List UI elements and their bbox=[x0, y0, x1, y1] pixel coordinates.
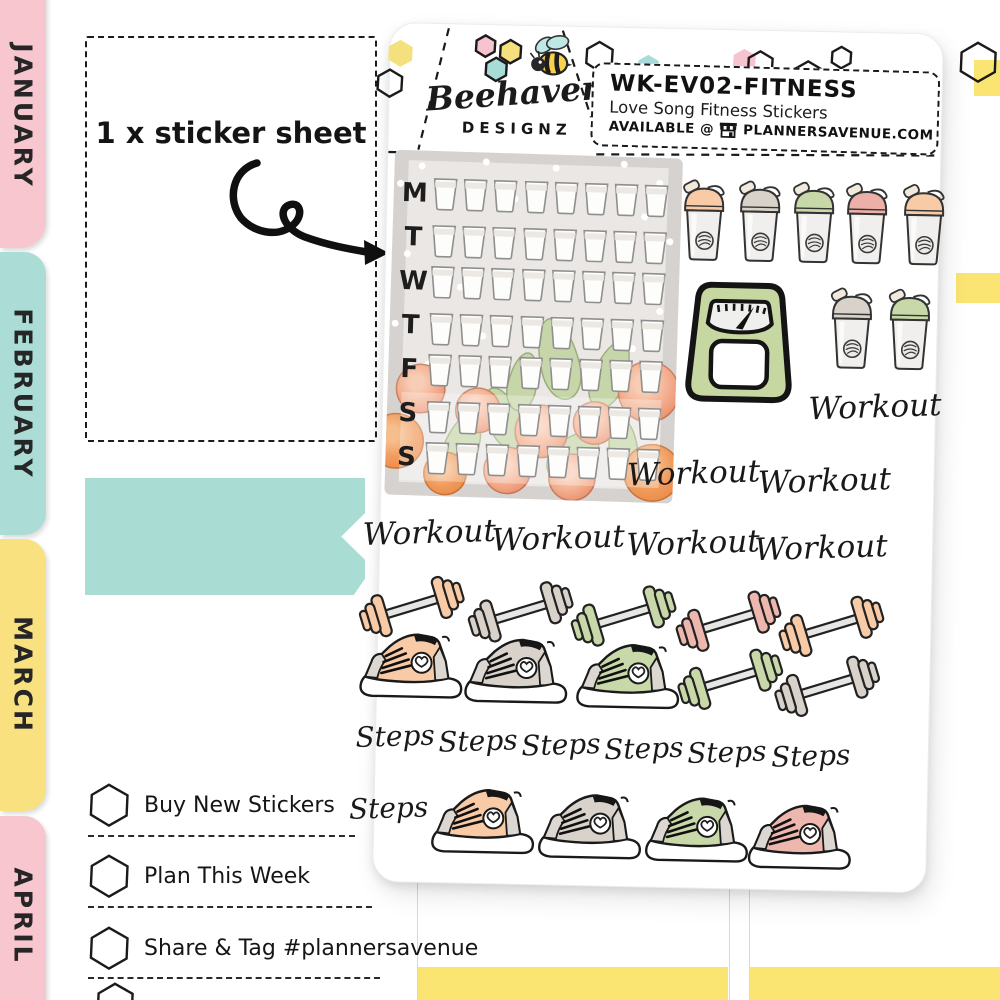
water-cup-icon bbox=[548, 316, 576, 355]
dashed-divider bbox=[88, 977, 380, 979]
checklist-item: Share & Tag #plannersavenue bbox=[88, 927, 478, 969]
water-cup-icon bbox=[456, 354, 484, 393]
month-tab-label: MARCH bbox=[9, 616, 38, 734]
day-label: T bbox=[400, 222, 427, 253]
sticker-count-box: 1 x sticker sheet bbox=[85, 36, 377, 442]
steps-script-sticker: Steps bbox=[771, 738, 851, 773]
water-cup-icon bbox=[460, 225, 488, 264]
month-tab-label: FEBRUARY bbox=[9, 308, 38, 479]
dumbbell-sticker bbox=[675, 642, 785, 720]
water-cup-icon bbox=[457, 313, 485, 352]
hexagon-checkbox-icon bbox=[88, 855, 130, 897]
water-cup-icon bbox=[424, 400, 452, 439]
workout-script-sticker: Workout bbox=[626, 523, 760, 563]
brand-logo: Beehaven DESIGNZ bbox=[436, 32, 588, 153]
water-cup-icon bbox=[520, 227, 548, 266]
water-cup-icon bbox=[544, 444, 572, 483]
workout-script-sticker: Workout bbox=[754, 528, 888, 568]
water-cup-icon bbox=[545, 404, 573, 443]
sneaker-sticker bbox=[573, 637, 683, 715]
water-cup-icon bbox=[642, 183, 670, 222]
water-cup-icon bbox=[519, 268, 547, 307]
day-label: T bbox=[397, 310, 424, 341]
shaker-bottle-sticker bbox=[841, 183, 893, 270]
yellow-washi-strip bbox=[418, 967, 728, 1000]
shaker-bottle-sticker bbox=[788, 181, 840, 268]
water-cup-icon bbox=[579, 270, 607, 309]
tracker-day-row: S bbox=[386, 396, 675, 445]
workout-script-sticker: Workout bbox=[627, 453, 761, 493]
water-cup-icon bbox=[461, 178, 489, 217]
water-cup-icon bbox=[638, 318, 666, 357]
water-cup-icon bbox=[517, 315, 545, 354]
water-cup-icon bbox=[546, 357, 574, 396]
sticker-sheet: Beehaven DESIGNZ WK-EV02-FITNESS Love So… bbox=[372, 22, 944, 893]
steps-script-sticker: Steps bbox=[521, 727, 601, 762]
water-cup-icon bbox=[611, 229, 639, 268]
month-tab-april: APRIL bbox=[0, 816, 46, 1000]
water-cup-icon bbox=[550, 228, 578, 267]
sneaker-sticker bbox=[461, 632, 571, 710]
yellow-washi-strip bbox=[750, 967, 1000, 1000]
water-cup-icon bbox=[426, 353, 454, 392]
tracker-day-row: T bbox=[392, 220, 681, 269]
water-cup-icon bbox=[577, 357, 605, 396]
steps-script-sticker: Steps bbox=[348, 790, 428, 825]
water-cup-icon bbox=[574, 445, 602, 484]
shaker-bottle-sticker bbox=[898, 184, 950, 271]
product-label-box: WK-EV02-FITNESS Love Song Fitness Sticke… bbox=[590, 62, 940, 156]
day-label: W bbox=[399, 266, 426, 297]
water-cup-icon bbox=[605, 405, 633, 444]
workout-script-sticker: Workout bbox=[808, 387, 942, 427]
month-tab-january: JANUARY bbox=[0, 0, 46, 248]
yellow-washi-strip bbox=[956, 273, 1000, 303]
store-domain: PLANNERSAVENUE.COM bbox=[743, 122, 934, 143]
sneaker-sticker bbox=[641, 790, 751, 868]
water-cup-icon bbox=[637, 359, 665, 398]
water-tracker-sticker: M T W T F bbox=[384, 150, 683, 504]
hexagon-outline-icon bbox=[958, 42, 998, 86]
checklist-item-label: Share & Tag #plannersavenue bbox=[144, 936, 478, 961]
steps-script-sticker: Steps bbox=[604, 731, 684, 766]
sheet-count-label: 1 x sticker sheet bbox=[87, 116, 375, 150]
hexagon-checkbox-icon bbox=[95, 983, 135, 1000]
brand-script-name: Beehaven bbox=[424, 68, 606, 119]
water-cup-icon bbox=[513, 444, 541, 483]
sneaker-sticker bbox=[428, 782, 538, 860]
shaker-bottle-sticker bbox=[678, 179, 730, 266]
dumbbell-sticker bbox=[772, 649, 882, 727]
checklist-item-label: Plan This Week bbox=[144, 864, 310, 889]
steps-script-sticker: Steps bbox=[687, 734, 767, 769]
month-tab-march: MARCH bbox=[0, 539, 46, 811]
water-cup-icon bbox=[490, 226, 518, 265]
water-cup-icon bbox=[607, 358, 635, 397]
planner-product-mockup: JANUARY FEBRUARY MARCH APRIL 1 x sticker… bbox=[0, 0, 1000, 1000]
dashed-divider bbox=[88, 906, 372, 908]
water-cup-icon bbox=[428, 265, 456, 304]
water-cup-icon bbox=[549, 269, 577, 308]
day-label: F bbox=[396, 354, 423, 385]
water-cup-icon bbox=[578, 316, 606, 355]
water-cup-icon bbox=[515, 403, 543, 442]
water-cup-icon bbox=[582, 182, 610, 221]
water-cup-icon bbox=[612, 183, 640, 222]
steps-script-sticker: Steps bbox=[438, 723, 518, 758]
water-cup-icon bbox=[484, 402, 512, 441]
scale-sticker bbox=[679, 277, 800, 413]
water-cup-icon bbox=[641, 230, 669, 269]
shaker-bottle-sticker bbox=[884, 288, 936, 375]
water-cup-icon bbox=[635, 406, 663, 445]
curved-arrow-icon bbox=[227, 156, 397, 271]
water-cup-icon bbox=[427, 312, 455, 351]
water-cup-icon bbox=[431, 177, 459, 216]
workout-script-sticker: Workout bbox=[757, 461, 891, 501]
checklist-item: Buy New Stickers bbox=[88, 784, 335, 826]
water-cup-icon bbox=[575, 404, 603, 443]
water-cup-icon bbox=[459, 266, 487, 305]
hexagon-checkbox-icon bbox=[88, 927, 130, 969]
sneaker-sticker bbox=[744, 798, 854, 876]
hexagon-checkbox-icon bbox=[88, 784, 130, 826]
water-cup-icon bbox=[487, 314, 515, 353]
checklist-item-label: Buy New Stickers bbox=[144, 793, 335, 818]
water-cup-icon bbox=[640, 271, 668, 310]
availability-prefix: AVAILABLE @ bbox=[608, 119, 714, 138]
water-cup-icon bbox=[609, 270, 637, 309]
water-cup-icon bbox=[491, 179, 519, 218]
water-cup-icon bbox=[423, 441, 451, 480]
water-cup-icon bbox=[522, 180, 550, 219]
shaker-bottle-sticker bbox=[734, 180, 786, 267]
water-cup-icon bbox=[483, 443, 511, 482]
water-cup-icon bbox=[453, 442, 481, 481]
sneaker-sticker bbox=[356, 626, 466, 704]
shaker-bottle-sticker bbox=[826, 287, 878, 374]
water-cup-icon bbox=[454, 401, 482, 440]
water-cup-icon bbox=[552, 181, 580, 220]
workout-script-sticker: Workout bbox=[362, 513, 496, 553]
day-label: S bbox=[393, 442, 420, 473]
month-tab-label: APRIL bbox=[9, 867, 38, 964]
workout-script-sticker: Workout bbox=[491, 519, 625, 559]
water-cup-icon bbox=[430, 224, 458, 263]
water-cup-icon bbox=[581, 229, 609, 268]
steps-script-sticker: Steps bbox=[355, 719, 435, 754]
month-tab-label: JANUARY bbox=[9, 43, 38, 188]
dashed-divider bbox=[88, 835, 355, 837]
teal-banner-ribbon bbox=[85, 478, 365, 595]
water-cup-icon bbox=[486, 355, 514, 394]
storefront-icon bbox=[719, 122, 738, 139]
brand-caps-name: DESIGNZ bbox=[437, 118, 597, 139]
tracker-day-row: T bbox=[389, 308, 678, 357]
water-cup-icon bbox=[608, 317, 636, 356]
day-label: M bbox=[401, 178, 428, 209]
month-tab-february: FEBRUARY bbox=[0, 252, 46, 535]
water-cup-icon bbox=[516, 356, 544, 395]
day-label: S bbox=[394, 398, 421, 429]
sneaker-sticker bbox=[534, 787, 644, 865]
water-cup-icon bbox=[489, 267, 517, 306]
checklist-item: Plan This Week bbox=[88, 855, 310, 897]
